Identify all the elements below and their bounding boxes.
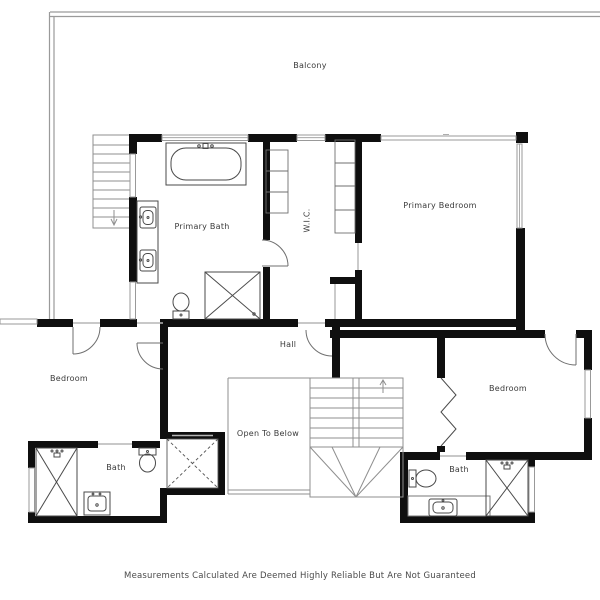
right-shower (486, 460, 528, 516)
primary-toilet (173, 293, 189, 319)
central-stairs (310, 378, 403, 497)
bath-right-label: Bath (429, 465, 489, 474)
left-shower (36, 448, 77, 516)
open-to-below-label: Open To Below (218, 429, 318, 438)
exterior-stairs (93, 135, 135, 228)
elevator-shaft (167, 439, 218, 488)
hall-label: Hall (258, 340, 318, 349)
floor-plan-drawing (0, 0, 600, 600)
left-vanity (84, 492, 110, 515)
primary-bath-label: Primary Bath (152, 222, 252, 231)
floor-plan: Balcony Primary Bath W.I.C. Primary Bedr… (0, 0, 600, 600)
primary-vanity (137, 201, 158, 283)
right-vanity (408, 496, 490, 516)
primary-bedroom-label: Primary Bedroom (380, 201, 500, 210)
balcony-label: Balcony (270, 61, 350, 70)
wic-label: W.I.C. (303, 201, 312, 241)
disclaimer-text: Measurements Calculated Are Deemed Highl… (0, 571, 600, 581)
bathtub (166, 143, 246, 185)
bedroom-right-label: Bedroom (468, 384, 548, 393)
primary-shower (205, 272, 260, 319)
window-mullions (162, 135, 520, 229)
bedroom-left-label: Bedroom (29, 374, 109, 383)
bifold-closet-door (441, 378, 456, 446)
bath-left-label: Bath (86, 463, 146, 472)
